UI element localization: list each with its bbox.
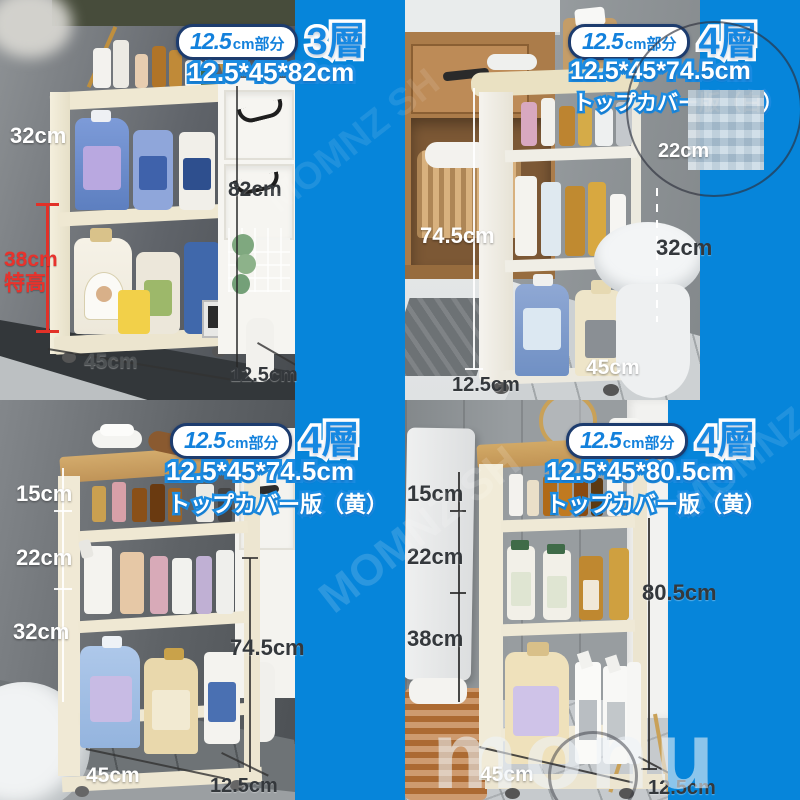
q2-pill-number: 12.5 [582, 28, 623, 55]
q3-dim-t1: 15cm [16, 482, 72, 507]
q1-spec-pill: 12.5 cm部分 [176, 24, 298, 60]
q1-dim-side: 32cm [10, 124, 66, 149]
q3-size-label: 12.5*45*74.5cm [166, 456, 354, 487]
q2-dim-upper: 22cm [658, 140, 709, 162]
q3-header: 12.5 cm部分 4層 [170, 422, 360, 460]
q2-dim-width: 45cm [586, 356, 640, 380]
product-collage: 12.5 cm部分 3層 12.5*45*82cm 32cm 38cm 特高 8… [0, 0, 800, 800]
measure-line-height [249, 558, 251, 772]
q3-dim-t3: 32cm [13, 620, 69, 645]
q2-dim-lower: 32cm [656, 236, 712, 261]
q2-dim-height: 74.5cm [420, 224, 495, 249]
q1-size-label: 12.5*45*82cm [188, 57, 354, 88]
q1-dim-depth: 12.5cm [230, 364, 298, 386]
cosmetics-tier2 [78, 538, 248, 616]
q3-dim-t2: 22cm [16, 546, 72, 571]
q3-subtitle-label: トップカバー版（黄） [168, 487, 388, 519]
q1-dim-width: 45cm [84, 350, 138, 374]
q4-dim-t3: 38cm [407, 627, 463, 652]
soap-dish [487, 54, 537, 70]
q3-dim-width: 45cm [86, 764, 140, 788]
q3-pill-suffix: cm部分 [227, 432, 279, 453]
q3-spec-pill: 12.5 cm部分 [170, 423, 292, 459]
q4-pill-suffix: cm部分 [623, 432, 675, 453]
q1-pill-suffix: cm部分 [233, 33, 285, 54]
detergent-bottles-bottom [72, 228, 242, 334]
measure-line-height [236, 86, 238, 368]
q2-dim-depth: 12.5cm [452, 374, 520, 396]
q3-pill-number: 12.5 [184, 427, 225, 454]
detergent-bottles-mid [75, 112, 235, 210]
q4-dim-height: 80.5cm [642, 581, 717, 606]
q4-pill-number: 12.5 [580, 427, 621, 454]
quadrant-top-left: 12.5 cm部分 3層 12.5*45*82cm 32cm 38cm 特高 8… [0, 0, 400, 400]
q4-spec-pill: 12.5 cm部分 [566, 423, 688, 459]
q3-dim-height: 74.5cm [230, 636, 305, 661]
q1-pill-number: 12.5 [190, 28, 231, 55]
q3-tier-label: 4層 [300, 422, 359, 460]
q3-dim-depth: 12.5cm [210, 775, 278, 797]
q1-dim-red: 38cm 特高 [4, 248, 58, 295]
q1-header: 12.5 cm部分 3層 [176, 23, 366, 61]
q1-tier-label: 3層 [306, 23, 365, 61]
quadrant-top-right: 12.5 cm部分 4層 12.5*45*74.5cm トップカバー版（白） 7… [400, 0, 800, 400]
cosmetics-tier2 [501, 534, 635, 622]
